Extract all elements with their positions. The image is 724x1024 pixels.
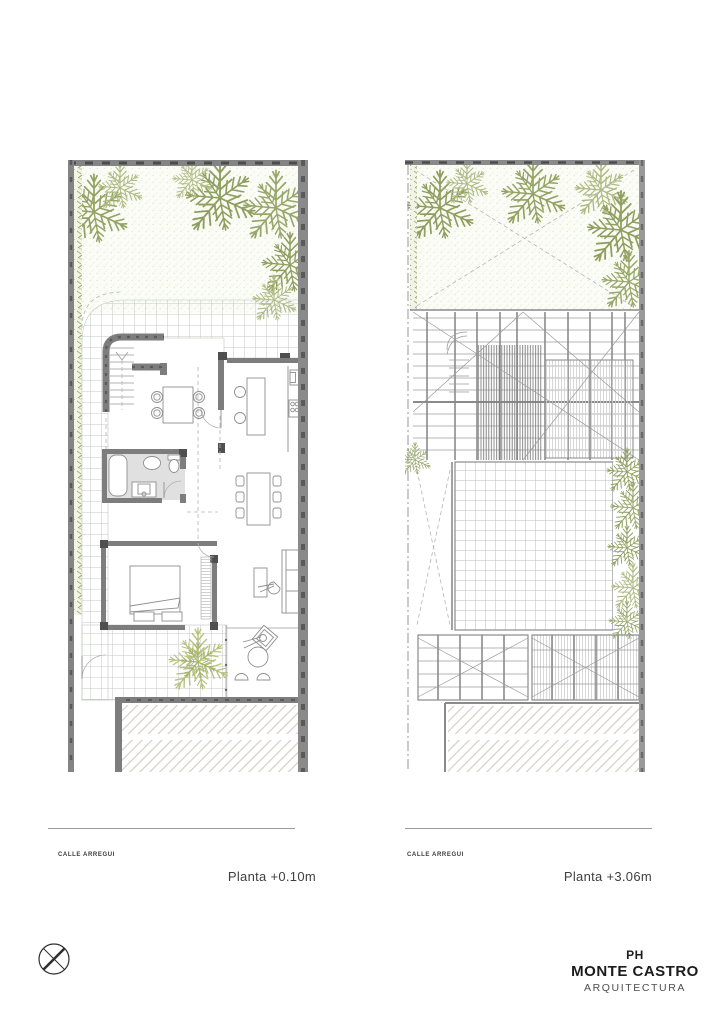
studio-logo: PH MONTE CASTRO ARQUITECTURA — [555, 948, 715, 994]
chair — [257, 674, 270, 681]
street-line-right — [405, 828, 652, 829]
upper-pergola — [413, 312, 639, 460]
light-slat-roof — [545, 360, 633, 458]
street-line-left — [48, 828, 295, 829]
logo-line-discipline: ARQUITECTURA — [555, 982, 715, 994]
north-marker-icon — [36, 941, 72, 977]
side-vegetation-strip — [74, 165, 82, 615]
plan-title-ground: Planta +0.10m — [196, 869, 316, 884]
floor-plan-roof — [405, 160, 645, 778]
stair-arrival — [447, 332, 469, 392]
chair — [235, 674, 248, 681]
kitchen — [235, 366, 301, 452]
plan-title-roof: Planta +3.06m — [532, 869, 652, 884]
drawing-sheet: CALLE ARREGUI CALLE ARREGUI Planta +0.10… — [0, 0, 724, 1024]
dining-table-large — [236, 473, 281, 525]
logo-line-name: MONTE CASTRO — [555, 963, 715, 980]
roof-terrace — [405, 442, 645, 642]
closet — [201, 557, 211, 619]
neighbor-roof-band — [445, 703, 639, 772]
logo-line-ph: PH — [555, 948, 715, 962]
round-table — [248, 647, 268, 667]
bedroom — [100, 540, 218, 630]
bathroom — [102, 449, 187, 503]
floor-plan-ground — [68, 160, 308, 778]
lower-pergolas — [418, 635, 639, 700]
dense-slat-roof — [477, 345, 542, 460]
roof-garden — [407, 160, 645, 312]
street-label-right: CALLE ARREGUI — [407, 852, 464, 858]
street-label-left: CALLE ARREGUI — [58, 852, 115, 858]
staircase — [106, 337, 167, 412]
dining-table-small — [152, 387, 205, 423]
living-room — [254, 550, 299, 613]
